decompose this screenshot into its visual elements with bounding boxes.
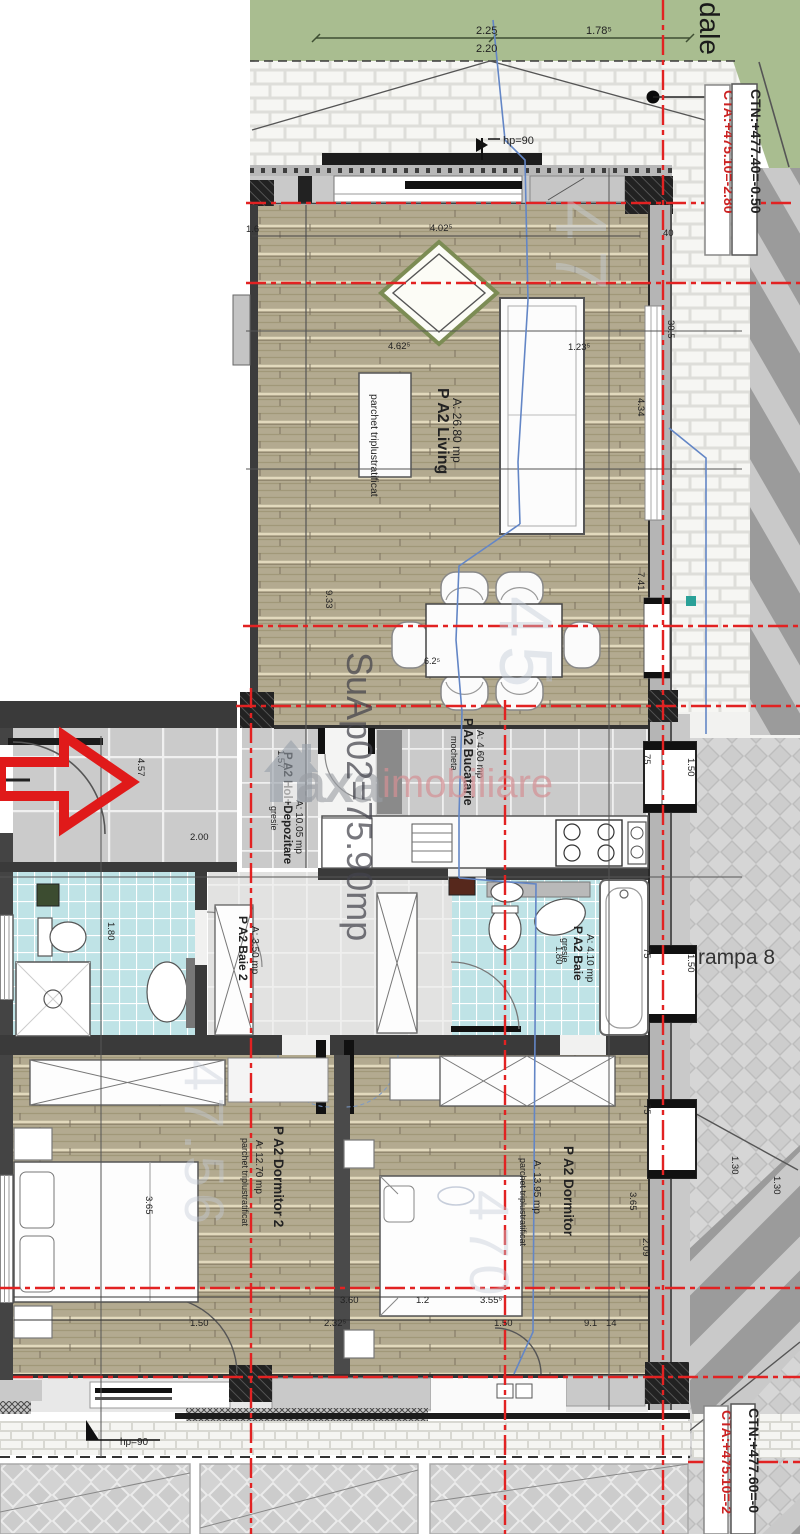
svg-text:1.23⁵: 1.23⁵ [568,342,590,353]
svg-text:SuAp02=75.90mp: SuAp02=75.90mp [339,652,380,941]
svg-text:CTN:+477.60=-0: CTN:+477.60=-0 [746,1408,762,1513]
svg-text:P A2 Living: P A2 Living [434,388,451,474]
svg-text:75: 75 [641,948,652,959]
svg-text:parchet triplustratificat: parchet triplustratificat [240,1138,250,1227]
svg-text:A: 4.10 mp: A: 4.10 mp [584,934,595,983]
svg-text:7.41: 7.41 [635,572,646,591]
svg-text:3.60: 3.60 [340,1295,359,1306]
svg-text:parchet triplustratificat: parchet triplustratificat [518,1158,528,1247]
svg-text:P A2 Dormitor: P A2 Dormitor [561,1146,576,1237]
svg-text:1.50: 1.50 [685,954,696,973]
svg-text:1.30: 1.30 [729,1156,740,1175]
svg-text:CTN:+477.40=-0.50: CTN:+477.40=-0.50 [748,89,764,214]
svg-text:1.50: 1.50 [494,1318,513,1329]
svg-text:30.5: 30.5 [665,320,676,339]
svg-text:75: 75 [641,1104,652,1115]
svg-text:hp=90: hp=90 [503,135,534,147]
svg-text:hp=90: hp=90 [120,1437,149,1448]
svg-text:2.00: 2.00 [190,832,209,843]
svg-text:P A2 Dormitor 2: P A2 Dormitor 2 [271,1126,286,1227]
svg-text:2.20: 2.20 [476,43,497,55]
svg-text:75: 75 [641,754,652,765]
svg-text:dale: dale [694,2,725,55]
svg-text:1.30: 1.30 [771,1176,782,1195]
svg-text:A: 3.50 mp: A: 3.50 mp [249,926,260,975]
svg-text:14: 14 [606,1318,617,1329]
svg-text:2.32⁵: 2.32⁵ [324,1318,346,1329]
svg-text:imobiliare: imobiliare [382,762,553,806]
svg-text:4.02⁵: 4.02⁵ [430,223,452,234]
svg-text:gresie: gresie [269,806,279,831]
svg-text:9.1: 9.1 [584,1318,597,1329]
svg-text:2.25: 2.25 [476,25,497,37]
svg-text:45: 45 [484,596,568,695]
svg-text:P A2 Baie 2: P A2 Baie 2 [236,916,250,981]
svg-text:40: 40 [663,228,674,239]
svg-text:A: 12.70 mp: A: 12.70 mp [253,1140,264,1194]
svg-text:47: 47 [540,200,620,300]
svg-text:47.56: 47.56 [173,1060,236,1230]
svg-text:A: 13.95 mp: A: 13.95 mp [531,1160,542,1214]
svg-text:9.33: 9.33 [323,590,334,609]
svg-text:1.6: 1.6 [246,224,259,235]
svg-text:1.80: 1.80 [105,922,116,941]
svg-text:4.62⁵: 4.62⁵ [388,341,410,352]
svg-text:3.65: 3.65 [627,1192,638,1211]
svg-text:6.2⁵: 6.2⁵ [424,656,441,666]
svg-text:A: 26.80 mp: A: 26.80 mp [450,398,464,463]
svg-text:1.50: 1.50 [685,758,696,777]
svg-text:1.2: 1.2 [416,1295,429,1306]
svg-text:parchet triplustratificat: parchet triplustratificat [368,394,380,497]
svg-text:1.50: 1.50 [190,1318,209,1329]
svg-text:4.34: 4.34 [635,398,646,417]
svg-text:P A2 Baie: P A2 Baie [571,926,585,981]
svg-text:3.55⁵: 3.55⁵ [480,1295,502,1306]
svg-text:3.65: 3.65 [143,1196,154,1215]
svg-text:2.09: 2.09 [640,1238,651,1257]
svg-text:470: 470 [458,1190,521,1301]
svg-text:rampa 8: rampa 8 [698,946,775,969]
svg-text:1.78⁵: 1.78⁵ [586,25,612,37]
svg-text:4.57: 4.57 [135,758,146,777]
svg-text:1.80: 1.80 [553,946,564,965]
